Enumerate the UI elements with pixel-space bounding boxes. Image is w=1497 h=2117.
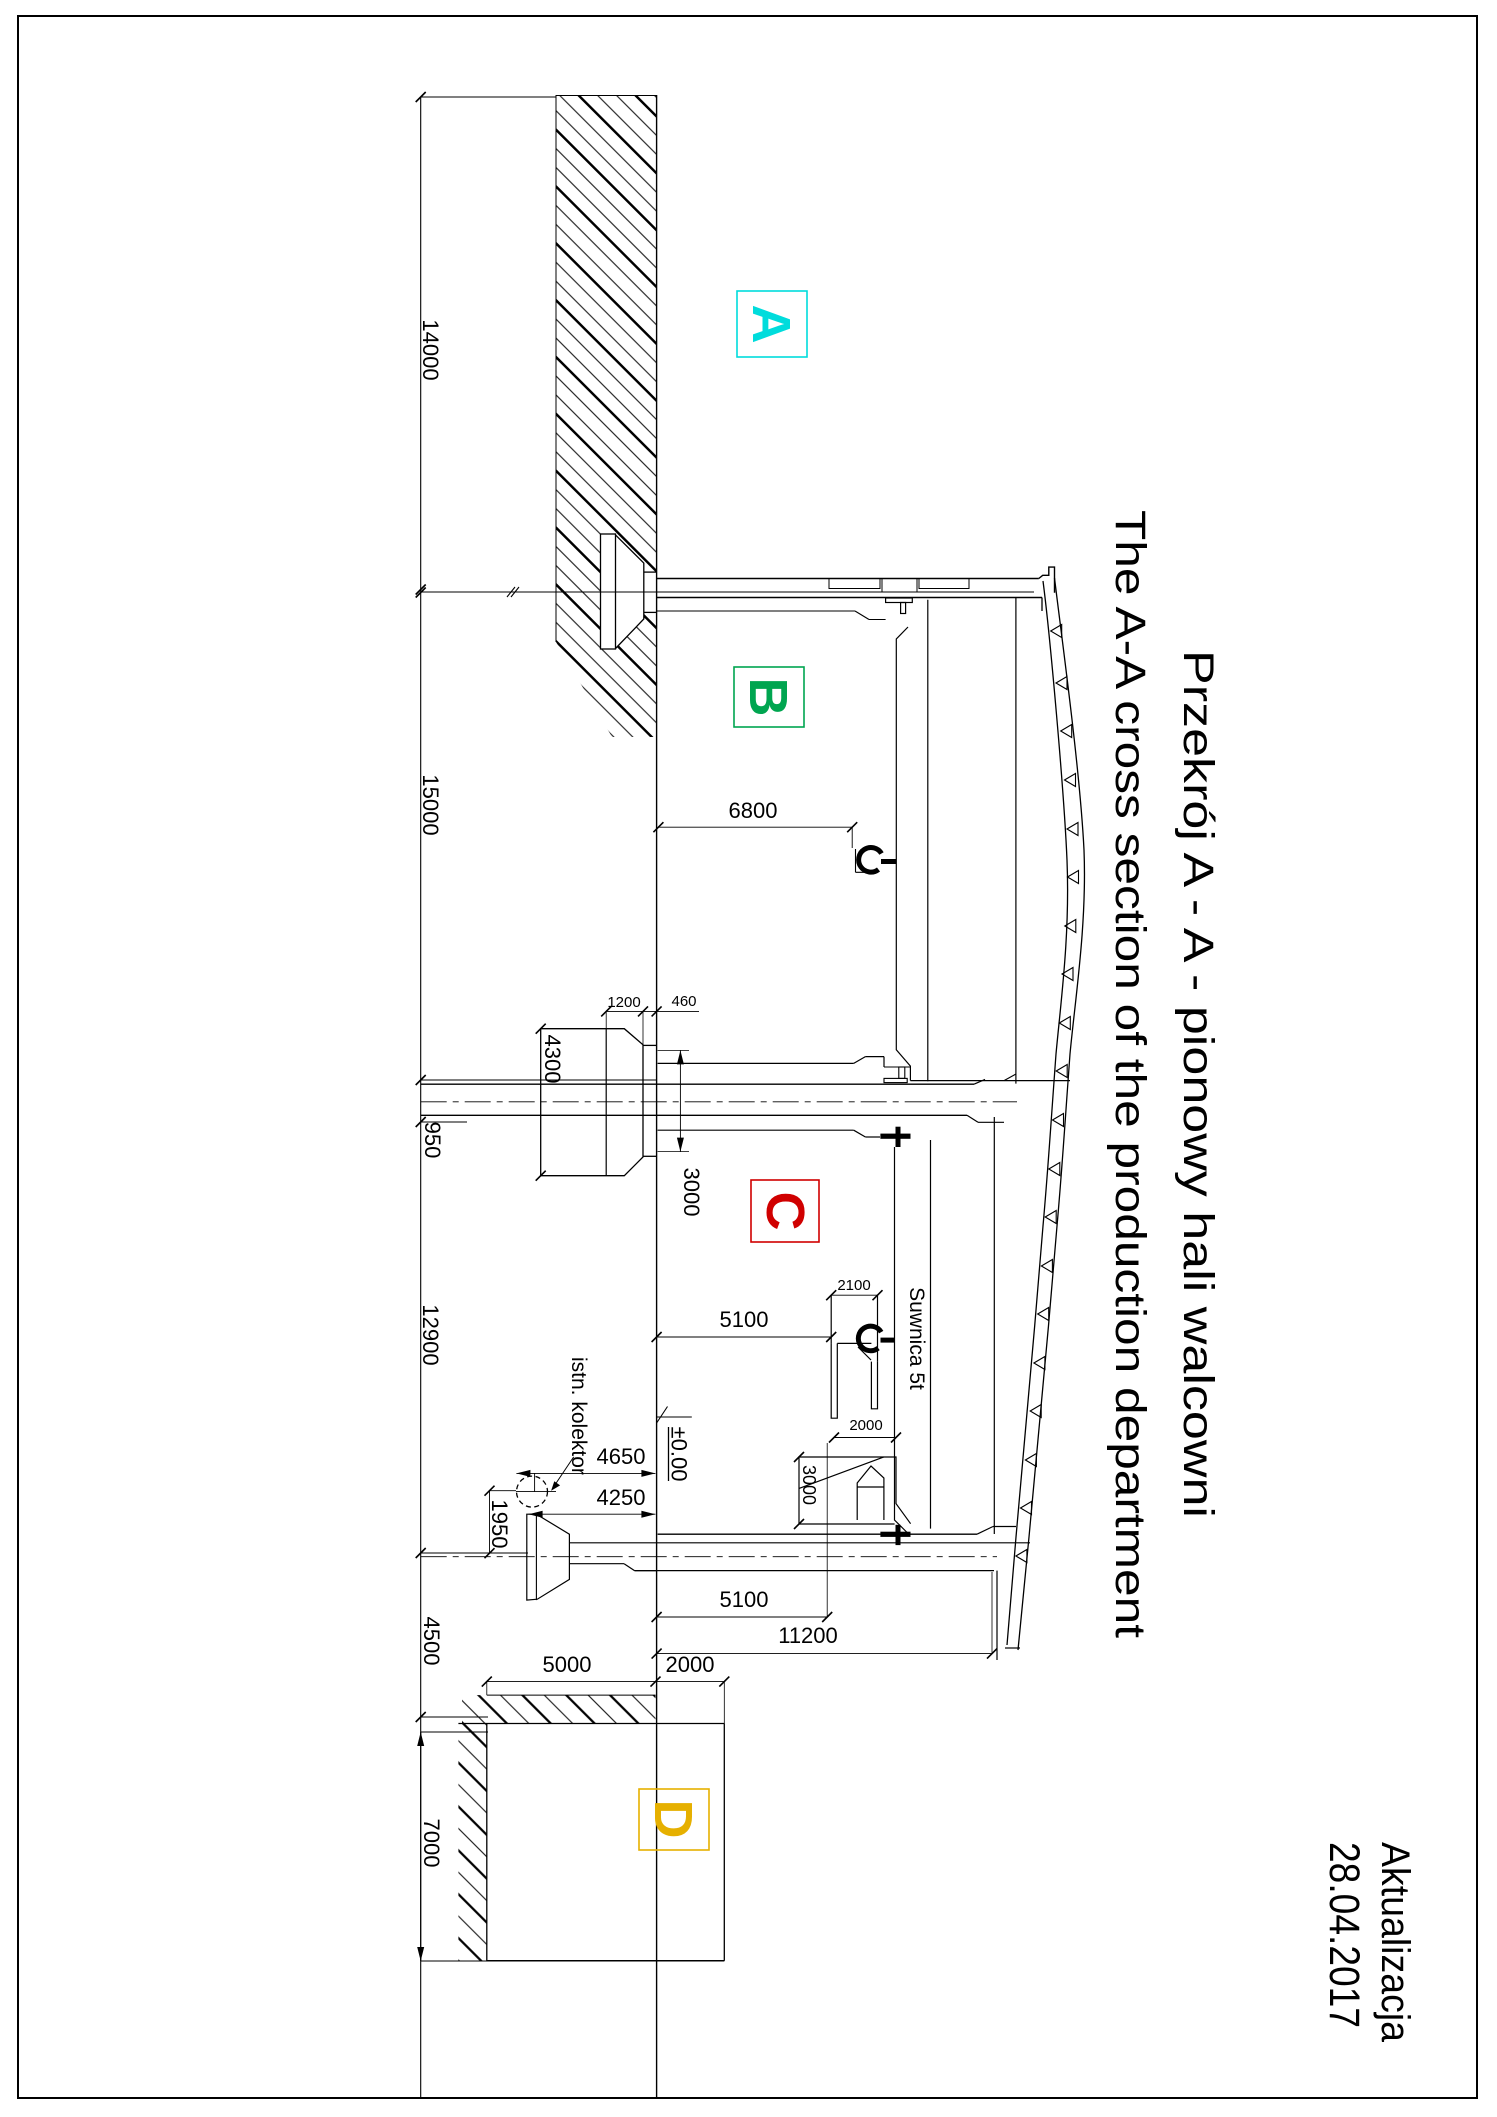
- svg-text:5000: 5000: [543, 1652, 592, 1677]
- svg-text:7000: 7000: [419, 1819, 444, 1868]
- svg-text:D: D: [643, 1800, 703, 1839]
- svg-text:4300: 4300: [540, 1035, 565, 1084]
- svg-text:The A-A cross section of the p: The A-A cross section of the production …: [1106, 510, 1154, 1638]
- svg-text:950: 950: [420, 1122, 445, 1159]
- svg-text:A: A: [741, 305, 801, 344]
- svg-text:2100: 2100: [837, 1277, 870, 1294]
- svg-text:C: C: [755, 1192, 815, 1231]
- svg-text:3000: 3000: [679, 1168, 704, 1217]
- svg-text:4650: 4650: [597, 1444, 646, 1469]
- svg-text:Suwnica 5t: Suwnica 5t: [905, 1287, 928, 1390]
- svg-text:28.04.2017: 28.04.2017: [1320, 1842, 1368, 2028]
- svg-text:4500: 4500: [419, 1617, 444, 1666]
- svg-text:460: 460: [671, 993, 696, 1010]
- svg-text:5100: 5100: [720, 1587, 769, 1612]
- svg-text:5100: 5100: [720, 1307, 769, 1332]
- svg-text:Aktualizacja: Aktualizacja: [1373, 1842, 1417, 2043]
- svg-text:1200: 1200: [607, 994, 640, 1011]
- svg-text:2000: 2000: [849, 1417, 882, 1434]
- svg-text:istn. kolektor: istn. kolektor: [567, 1357, 590, 1475]
- svg-text:15000: 15000: [418, 774, 443, 835]
- svg-text:6800: 6800: [729, 798, 778, 823]
- svg-text:14000: 14000: [418, 319, 443, 380]
- svg-text:11200: 11200: [778, 1623, 838, 1648]
- svg-text:3000: 3000: [799, 1465, 819, 1505]
- svg-text:±0.00: ±0.00: [667, 1427, 692, 1482]
- svg-text:1950: 1950: [487, 1500, 512, 1549]
- svg-text:12900: 12900: [418, 1304, 443, 1365]
- svg-text:4250: 4250: [597, 1485, 646, 1510]
- svg-text:2000: 2000: [666, 1652, 715, 1677]
- svg-text:B: B: [738, 678, 798, 717]
- svg-text:Przekrój A - A - pionowy hali: Przekrój A - A - pionowy hali walcowni: [1174, 650, 1222, 1518]
